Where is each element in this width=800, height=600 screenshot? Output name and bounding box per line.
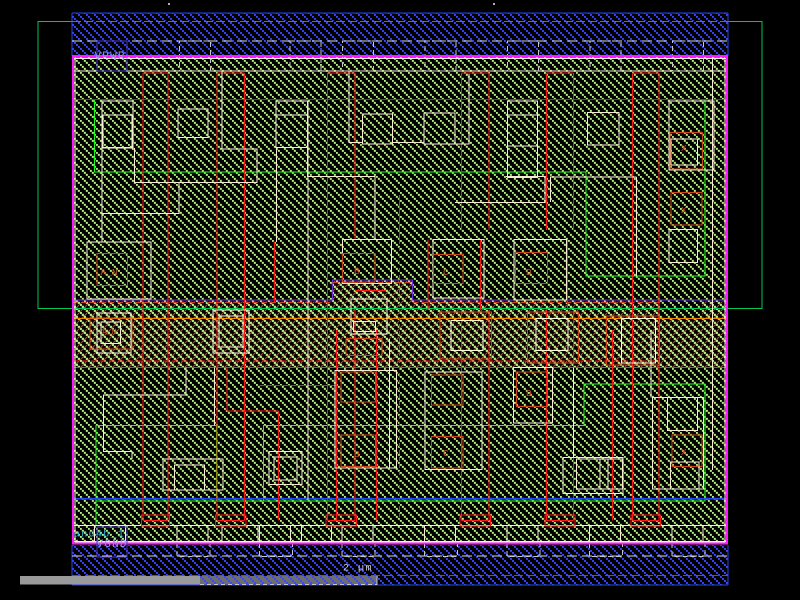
svg-text:D: D [526,388,532,399]
svg-text:X: X [681,447,687,458]
svg-text:and4b_1: and4b_1 [74,529,125,541]
svg-text:B: B [354,449,360,460]
svg-text:C: C [443,267,449,278]
svg-text:VGND: VGND [97,539,128,551]
svg-text:X: X [681,143,687,154]
svg-text:C: C [443,448,449,459]
svg-text:D: D [526,267,532,278]
svg-text:VPWR: VPWR [95,51,126,63]
svg-text:A_N: A_N [101,267,118,278]
svg-text:X: X [681,205,687,216]
svg-text:A_N: A_N [102,328,117,337]
svg-text:2 µm: 2 µm [343,564,373,575]
svg-text:B: B [354,266,360,277]
